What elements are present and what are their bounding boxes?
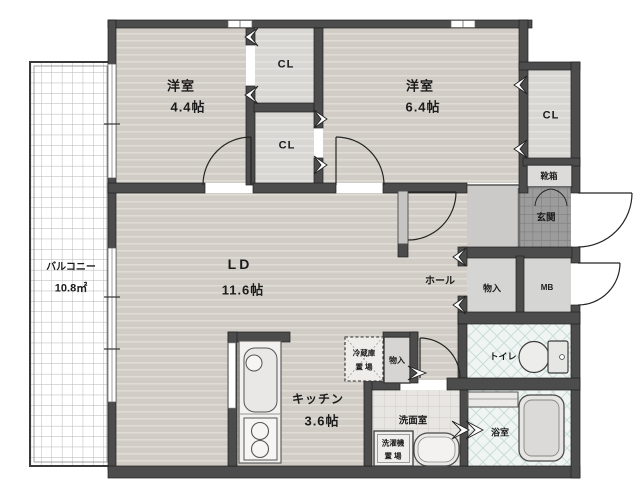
closet-right-label: CL [543, 111, 560, 122]
wash-basin [414, 433, 459, 466]
meter-box-label: MB [541, 284, 553, 292]
bathroom-label: 浴室 [491, 429, 509, 438]
floor-plan: 洋室 4.4帖 CL CL 洋室 6.4帖 CL 靴箱 玄関 バルコニー 10.… [0, 0, 640, 499]
washer-space-label-2: 置 場 [384, 452, 401, 460]
closet-top-label: CL [278, 60, 295, 71]
storage-hall-label: 物入 [483, 285, 501, 294]
kitchen-size-label: 3.6帖 [304, 415, 339, 428]
bedroom1-size-label: 4.4帖 [170, 101, 205, 114]
balcony-size-label: 10.8㎡ [55, 284, 87, 295]
washer-space-box [374, 431, 413, 466]
balcony-name-label: バルコニー [46, 263, 96, 273]
storage-kitchen-label: 物入 [389, 357, 405, 365]
shoebox-label: 靴箱 [540, 172, 557, 181]
toilet-label: トイレ [489, 353, 516, 362]
toilet-fixture [519, 341, 568, 373]
bathroom-counter [468, 392, 518, 407]
hall-partition-stub [398, 191, 408, 244]
fridge-space-box [345, 337, 383, 381]
hall-entry-strip [467, 185, 519, 247]
bathtub [519, 395, 564, 461]
entrance-door [578, 193, 632, 247]
bedroom2-name-label: 洋室 [406, 80, 434, 93]
entrance-label: 玄関 [536, 213, 555, 223]
bedroom2-size-label: 6.4帖 [405, 101, 440, 114]
living-dining-name-label: LD [228, 257, 253, 271]
kitchen-faucet [246, 355, 262, 371]
hall-label: ホール [425, 277, 455, 287]
living-dining-size-label: 11.6帖 [222, 284, 265, 297]
washroom-label: 洗面室 [399, 416, 428, 426]
kitchen-name-label: キッチン [292, 393, 344, 405]
fridge-space-label-2: 置 場 [355, 363, 372, 371]
washer-space-label-1: 洗濯機 [382, 439, 405, 447]
closet-bottom-label: CL [279, 141, 296, 152]
fridge-space-label-1: 冷蔵庫 [353, 349, 376, 357]
bedroom1-name-label: 洋室 [167, 80, 195, 93]
meter-box-door [578, 263, 620, 305]
